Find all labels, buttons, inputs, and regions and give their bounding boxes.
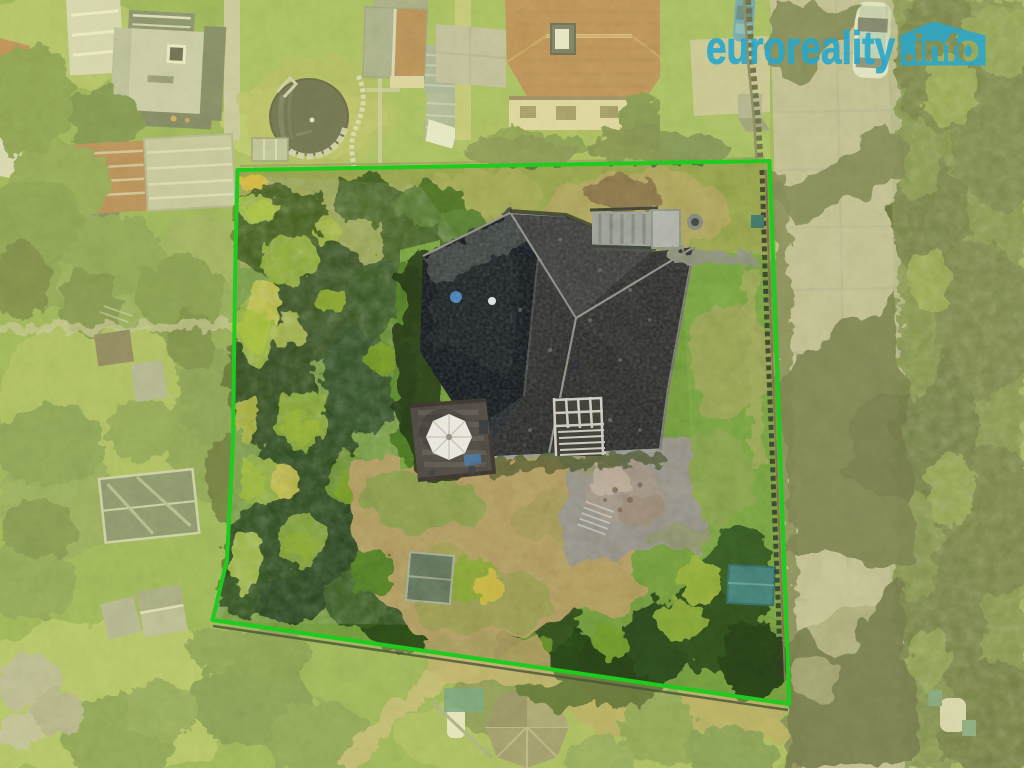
svg-text:euroreality: euroreality [706, 22, 895, 74]
